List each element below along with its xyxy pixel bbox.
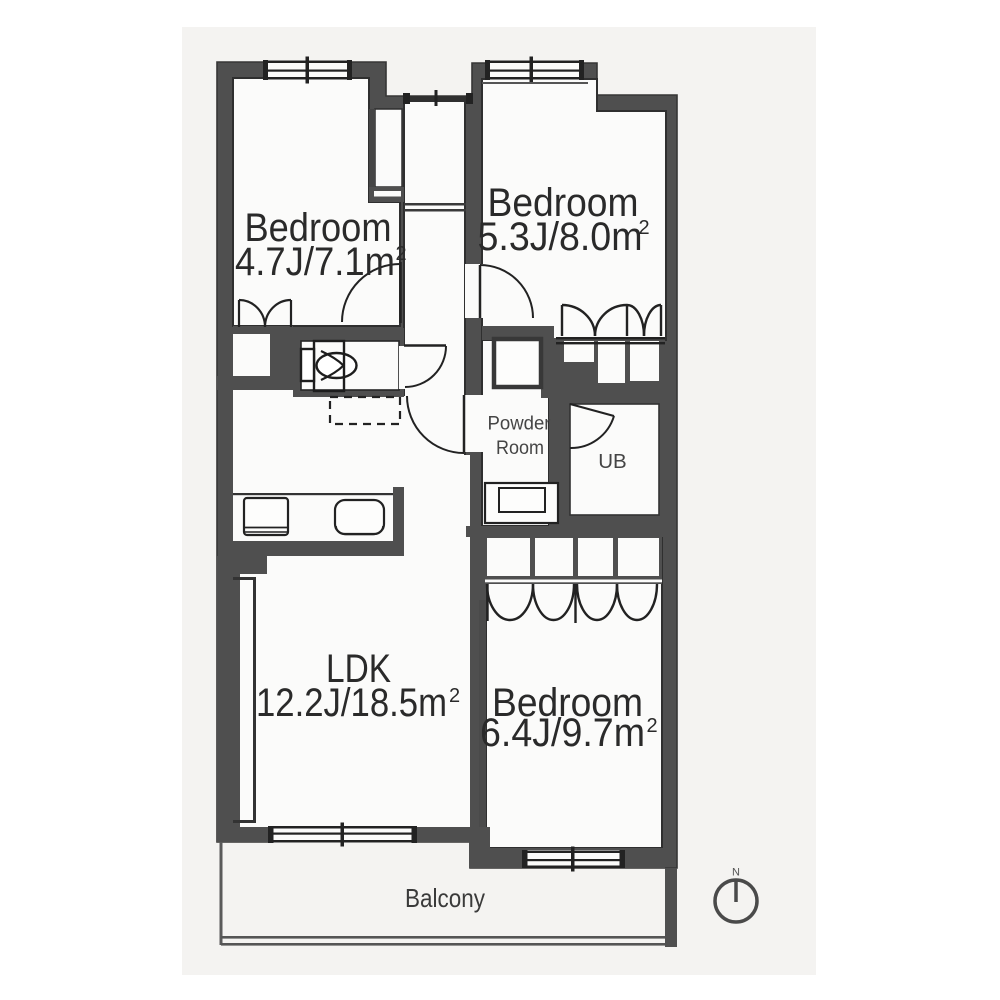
svg-text:12.2J/18.5m: 12.2J/18.5m xyxy=(256,681,447,725)
svg-text:2: 2 xyxy=(449,685,460,707)
svg-text:2: 2 xyxy=(639,217,650,239)
svg-text:2: 2 xyxy=(396,243,407,265)
svg-text:2: 2 xyxy=(647,715,658,737)
svg-text:4.7J/7.1m: 4.7J/7.1m xyxy=(235,240,395,284)
svg-text:Powder: Powder xyxy=(488,413,551,435)
svg-text:Balcony: Balcony xyxy=(405,883,485,913)
svg-text:N: N xyxy=(732,867,740,879)
svg-text:6.4J/9.7m: 6.4J/9.7m xyxy=(480,711,645,755)
svg-text:UB: UB xyxy=(598,450,626,473)
svg-text:Room: Room xyxy=(496,437,544,459)
svg-text:5.3J/8.0m: 5.3J/8.0m xyxy=(478,215,643,259)
